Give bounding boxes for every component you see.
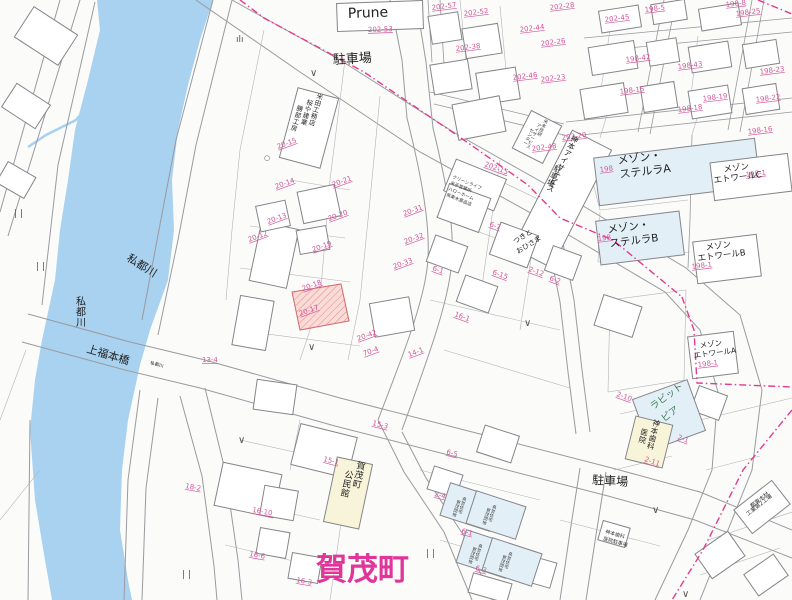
place-label: 賀茂町 [316, 552, 409, 588]
map-canvas[interactable]: 202-57202-52202-28198-5198-8198-25202-45… [0, 0, 792, 600]
map-symbol: ∨ [524, 318, 531, 329]
place-label: 私都川 [76, 296, 86, 329]
map-symbol: ∨ [238, 435, 245, 446]
map-viewport[interactable]: { "map": { "big_label": "賀茂町", "colors":… [0, 0, 792, 600]
map-symbol: ∨ [308, 342, 315, 353]
parcel-number: 198 [599, 164, 613, 174]
parcel-number: 13-4 [202, 356, 218, 364]
map-symbol: | | [426, 549, 435, 559]
map-symbol: | | [36, 262, 45, 272]
map-symbol: ∨ [310, 68, 317, 79]
place-label: 202-53 [368, 25, 393, 34]
map-symbol: | | [182, 570, 191, 580]
map-symbol: ılı [236, 35, 244, 45]
place-label: Prune [348, 5, 389, 22]
map-symbol: ○ [264, 154, 270, 162]
place-label: 駐車場 [592, 472, 629, 489]
map-symbol: ∨ [682, 589, 689, 600]
map-symbol: | | [14, 209, 23, 219]
map-symbol: ∨ [652, 505, 659, 516]
place-label: 駐車場 [332, 51, 372, 68]
